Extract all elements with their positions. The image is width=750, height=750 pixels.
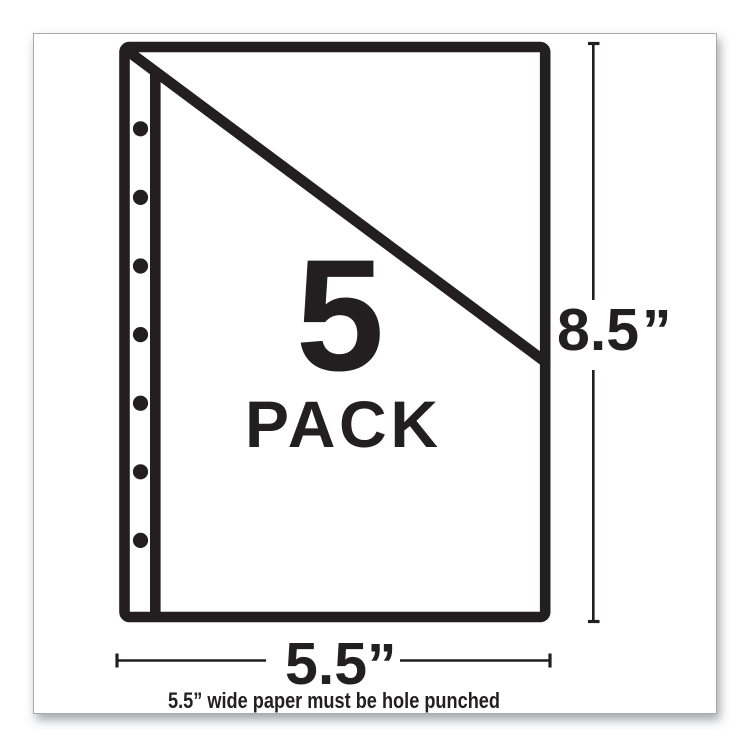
svg-text:5.5” wide paper must be hole p: 5.5” wide paper must be hole punched [168, 688, 500, 713]
svg-text:5: 5 [296, 226, 384, 404]
svg-text:PACK: PACK [245, 387, 438, 461]
svg-text:8.5”: 8.5” [557, 297, 672, 364]
